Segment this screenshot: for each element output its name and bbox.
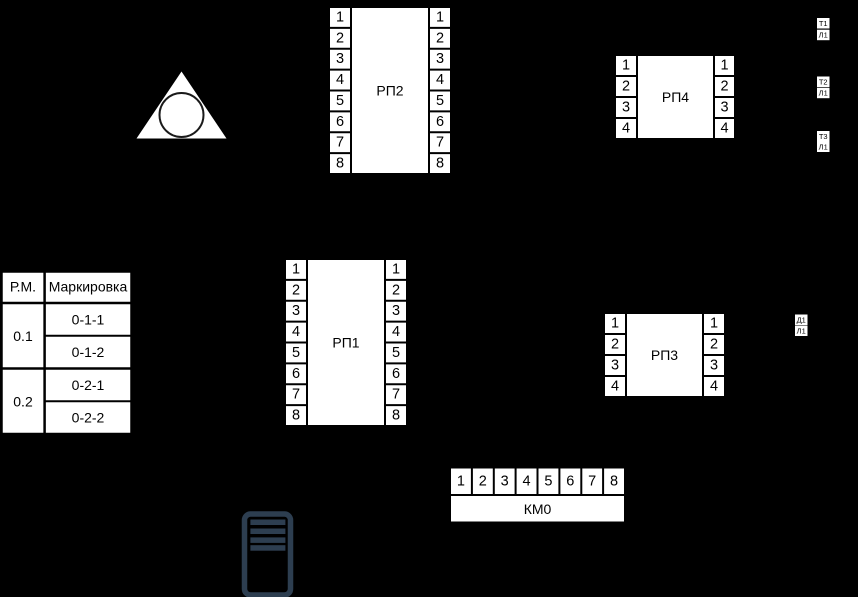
svg-text:8: 8 xyxy=(392,408,400,424)
svg-text:2: 2 xyxy=(436,30,444,46)
svg-text:4: 4 xyxy=(710,379,718,395)
svg-text:Р.М.: Р.М. xyxy=(10,279,36,295)
svg-text:3: 3 xyxy=(436,51,444,67)
svg-text:3: 3 xyxy=(392,303,400,319)
svg-text:2: 2 xyxy=(622,79,630,95)
svg-text:Т2: Т2 xyxy=(819,78,828,87)
svg-text:3: 3 xyxy=(622,100,630,116)
svg-text:4: 4 xyxy=(523,474,531,490)
svg-text:5: 5 xyxy=(544,474,552,490)
svg-text:2: 2 xyxy=(611,337,619,353)
svg-text:1: 1 xyxy=(292,261,300,277)
svg-text:4: 4 xyxy=(622,121,630,137)
svg-text:5: 5 xyxy=(292,345,300,361)
svg-text:8: 8 xyxy=(336,156,344,172)
svg-text:0-1-2: 0-1-2 xyxy=(72,344,105,360)
svg-text:Л1: Л1 xyxy=(819,31,828,40)
svg-text:0-2-2: 0-2-2 xyxy=(72,410,105,426)
svg-text:6: 6 xyxy=(436,114,444,130)
svg-text:0.2: 0.2 xyxy=(13,393,33,409)
svg-text:1: 1 xyxy=(336,9,344,25)
svg-text:2: 2 xyxy=(336,30,344,46)
svg-text:4: 4 xyxy=(611,379,619,395)
svg-text:1: 1 xyxy=(622,58,630,74)
svg-text:3: 3 xyxy=(720,100,728,116)
svg-text:8: 8 xyxy=(292,408,300,424)
svg-text:6: 6 xyxy=(392,366,400,382)
svg-text:4: 4 xyxy=(392,324,400,340)
svg-text:Д1: Д1 xyxy=(797,316,806,325)
svg-text:1: 1 xyxy=(611,316,619,332)
svg-text:Л1: Л1 xyxy=(819,89,828,98)
svg-text:1: 1 xyxy=(457,474,465,490)
svg-text:7: 7 xyxy=(588,474,596,490)
svg-text:5: 5 xyxy=(392,345,400,361)
svg-text:0.1: 0.1 xyxy=(13,328,33,344)
svg-text:РП4: РП4 xyxy=(662,89,689,105)
svg-text:Т3: Т3 xyxy=(819,132,828,141)
svg-text:3: 3 xyxy=(501,474,509,490)
svg-text:0-1-1: 0-1-1 xyxy=(72,312,105,328)
svg-text:2: 2 xyxy=(479,474,487,490)
svg-text:3: 3 xyxy=(710,358,718,374)
svg-text:7: 7 xyxy=(336,135,344,151)
svg-text:8: 8 xyxy=(436,156,444,172)
svg-text:2: 2 xyxy=(720,79,728,95)
svg-text:8: 8 xyxy=(610,474,618,490)
svg-text:РП1: РП1 xyxy=(332,335,359,351)
svg-text:6: 6 xyxy=(566,474,574,490)
svg-text:РП2: РП2 xyxy=(376,83,403,99)
svg-text:1: 1 xyxy=(720,58,728,74)
svg-text:4: 4 xyxy=(436,72,444,88)
svg-text:Т1: Т1 xyxy=(819,19,828,28)
svg-text:2: 2 xyxy=(292,282,300,298)
svg-text:1: 1 xyxy=(436,9,444,25)
svg-text:Л1: Л1 xyxy=(797,327,806,336)
svg-text:1: 1 xyxy=(392,261,400,277)
svg-text:Маркировка: Маркировка xyxy=(49,279,128,295)
svg-text:РП3: РП3 xyxy=(651,347,678,363)
svg-text:3: 3 xyxy=(611,358,619,374)
svg-text:4: 4 xyxy=(292,324,300,340)
svg-text:6: 6 xyxy=(292,366,300,382)
svg-text:КМ0: КМ0 xyxy=(524,501,552,517)
svg-text:3: 3 xyxy=(292,303,300,319)
svg-text:0-2-1: 0-2-1 xyxy=(72,377,105,393)
svg-text:2: 2 xyxy=(392,282,400,298)
svg-text:2: 2 xyxy=(710,337,718,353)
svg-text:6: 6 xyxy=(336,114,344,130)
svg-text:5: 5 xyxy=(436,93,444,109)
svg-text:3: 3 xyxy=(336,51,344,67)
svg-text:1: 1 xyxy=(710,316,718,332)
svg-text:7: 7 xyxy=(436,135,444,151)
svg-text:7: 7 xyxy=(392,387,400,403)
svg-text:4: 4 xyxy=(336,72,344,88)
svg-text:7: 7 xyxy=(292,387,300,403)
svg-text:5: 5 xyxy=(336,93,344,109)
svg-text:4: 4 xyxy=(720,121,728,137)
svg-text:Л1: Л1 xyxy=(819,143,828,152)
